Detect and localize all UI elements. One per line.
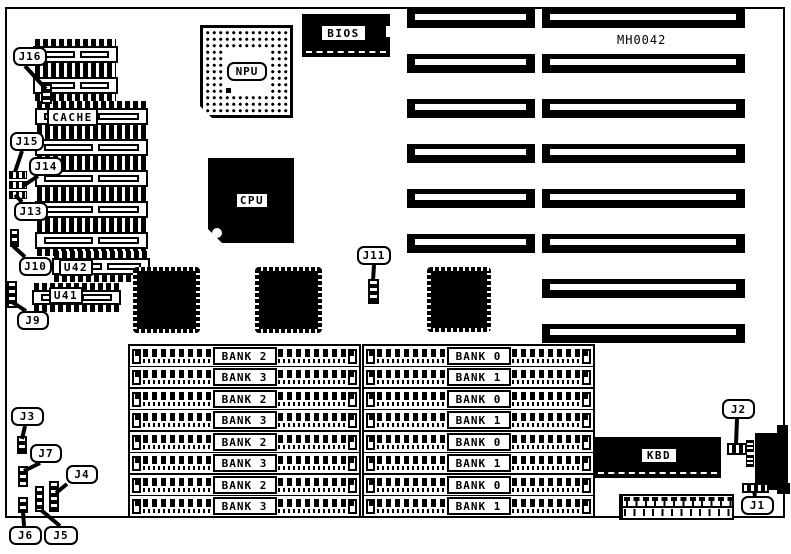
memory-bank-block-left: BANK 2 BANK 3 BANK 2 BANK 3 BANK 2 BANK …: [128, 344, 361, 518]
simm-clip-left: [132, 435, 141, 450]
dip-pins: [37, 101, 146, 108]
simm-pads: [512, 454, 581, 473]
power-sockets-row: [623, 506, 732, 518]
expansion-slot: [407, 9, 535, 28]
expansion-slot: [407, 234, 535, 253]
bank-label: BANK 0: [447, 433, 511, 451]
model-number: MH0042: [617, 33, 666, 47]
bank-label: BANK 3: [213, 368, 277, 386]
simm-socket: BANK 1: [364, 410, 593, 432]
expansion-slot: [407, 189, 535, 208]
simm-pads: [278, 368, 347, 387]
simm-pads: [377, 497, 446, 516]
u42-label: U42: [59, 259, 93, 276]
jumper-label-j13: J13: [14, 202, 48, 221]
simm-pads: [143, 390, 212, 409]
simm-clip-left: [132, 349, 141, 364]
simm-clip-left: [132, 478, 141, 493]
qfp-chip: [133, 267, 200, 333]
expansion-slot: [542, 189, 745, 208]
simm-pads: [278, 454, 347, 473]
jumper-label-j16: J16: [13, 47, 47, 66]
simm-pads: [377, 411, 446, 430]
jumper-label-j11: J11: [357, 246, 391, 265]
bank-label: BANK 0: [447, 347, 511, 365]
simm-clip-left: [132, 499, 141, 514]
qfp-chip: [255, 267, 322, 333]
simm-clip-left: [366, 370, 375, 385]
jumper-j10: [10, 229, 19, 247]
simm-pads: [377, 368, 446, 387]
keyboard-connector-pins: [746, 440, 754, 452]
bank-label: BANK 3: [213, 411, 277, 429]
bank-label: BANK 3: [213, 454, 277, 472]
dip-pins: [37, 125, 146, 132]
bank-label: BANK 1: [447, 368, 511, 386]
dip-pins: [37, 218, 146, 225]
simm-clip-right: [348, 499, 357, 514]
keyboard-connector: [755, 433, 788, 490]
cpu-label: CPU: [235, 192, 269, 209]
simm-clip-left: [132, 456, 141, 471]
expansion-slot: [542, 279, 745, 298]
dip-pins: [37, 194, 146, 201]
expansion-slot: [542, 9, 745, 28]
simm-clip-left: [132, 370, 141, 385]
simm-socket: BANK 2: [130, 346, 359, 367]
simm-socket: BANK 2: [130, 432, 359, 453]
simm-clip-left: [366, 392, 375, 407]
simm-pads: [512, 411, 581, 430]
jumper-label-j14: J14: [29, 157, 63, 176]
jumper-j6: [18, 497, 28, 513]
simm-pads: [278, 497, 347, 516]
jumper-label-j9: J9: [17, 311, 49, 330]
simm-clip-left: [132, 392, 141, 407]
cache-label: CACHE: [47, 108, 98, 126]
bank-label: BANK 2: [213, 433, 277, 451]
jumper-j15-j14-1: [9, 171, 27, 179]
simm-pads: [512, 368, 581, 387]
simm-pads: [512, 497, 581, 516]
simm-pads: [377, 433, 446, 452]
jumper-j11: [368, 279, 379, 304]
jumper-label-j3: J3: [11, 407, 44, 426]
simm-clip-right: [582, 499, 591, 514]
jumper-j15-j14-2: [9, 181, 27, 189]
jumper-label-j1: J1: [741, 496, 774, 515]
simm-pads: [278, 476, 347, 495]
simm-clip-left: [366, 499, 375, 514]
dip-pins: [35, 39, 116, 46]
u41-label: U41: [49, 287, 83, 304]
bank-label: BANK 1: [447, 497, 511, 515]
simm-pads: [512, 476, 581, 495]
jumper-label-j15: J15: [10, 132, 44, 151]
simm-socket: BANK 3: [130, 496, 359, 516]
expansion-slot: [407, 144, 535, 163]
expansion-slot: [542, 234, 745, 253]
power-pins-row: [623, 496, 732, 506]
simm-clip-right: [582, 349, 591, 364]
cache-dip-chip: [35, 194, 148, 225]
simm-pads: [278, 390, 347, 409]
power-connector: [619, 494, 734, 520]
jumper-label-j7: J7: [30, 444, 62, 463]
simm-socket: BANK 2: [130, 475, 359, 496]
simm-clip-right: [348, 456, 357, 471]
simm-socket: BANK 0: [364, 389, 593, 410]
keyboard-connector-tab: [777, 425, 788, 435]
simm-clip-left: [366, 349, 375, 364]
simm-pads: [143, 368, 212, 387]
jumper-j1: [742, 483, 769, 493]
dip-body: [35, 139, 148, 156]
simm-socket: BANK 3: [130, 453, 359, 475]
expansion-slot: [542, 54, 745, 73]
simm-pads: [512, 433, 581, 452]
expansion-slot: [542, 144, 745, 163]
bank-label: BANK 2: [213, 476, 277, 494]
simm-pads: [143, 347, 212, 366]
simm-socket: BANK 0: [364, 475, 593, 496]
expansion-slot: [542, 324, 745, 343]
jumper-j5: [35, 486, 44, 512]
bank-label: BANK 0: [447, 476, 511, 494]
jumper-j15-j14-3: [9, 191, 27, 199]
simm-clip-right: [348, 435, 357, 450]
kbd-label: KBD: [640, 447, 678, 464]
jumper-j16: [41, 84, 52, 104]
bank-label: BANK 0: [447, 390, 511, 408]
simm-socket: BANK 0: [364, 432, 593, 453]
simm-clip-right: [582, 456, 591, 471]
simm-clip-right: [348, 413, 357, 428]
simm-socket: BANK 1: [364, 367, 593, 389]
expansion-slot: [407, 54, 535, 73]
jumper-label-j2: J2: [722, 399, 755, 419]
jumper-j4: [49, 481, 59, 512]
simm-clip-right: [348, 349, 357, 364]
kbd-pin1-dash: [598, 472, 717, 474]
simm-pads: [143, 454, 212, 473]
simm-pads: [377, 454, 446, 473]
keyboard-connector-pins: [746, 455, 754, 467]
jumper-label-j6: J6: [9, 526, 42, 545]
bank-label: BANK 2: [213, 347, 277, 365]
simm-socket: BANK 1: [364, 453, 593, 475]
simm-pads: [278, 433, 347, 452]
bios-label: BIOS: [320, 24, 367, 42]
simm-pads: [512, 347, 581, 366]
bank-label: BANK 3: [213, 497, 277, 515]
dip-body: [35, 201, 148, 218]
simm-clip-right: [348, 370, 357, 385]
jumper-j7: [18, 466, 28, 487]
bios-notch: [386, 26, 390, 37]
dip-body: [35, 232, 148, 249]
jumper-j2: [727, 443, 747, 455]
simm-socket: BANK 3: [130, 410, 359, 432]
simm-clip-right: [348, 392, 357, 407]
simm-socket: BANK 0: [364, 346, 593, 367]
dip-pins: [35, 63, 116, 70]
keyboard-connector-tab: [777, 483, 790, 494]
simm-pads: [143, 433, 212, 452]
simm-pads: [143, 497, 212, 516]
dip-pins: [37, 225, 146, 232]
dip-pins: [34, 305, 119, 312]
npu-label: NPU: [227, 62, 267, 81]
simm-pads: [377, 347, 446, 366]
simm-clip-right: [348, 478, 357, 493]
jumper-label-j5: J5: [44, 526, 78, 545]
simm-clip-left: [366, 456, 375, 471]
simm-socket: BANK 3: [130, 367, 359, 389]
memory-bank-block-right: BANK 0 BANK 1 BANK 0 BANK 1 BANK 0 BANK …: [362, 344, 595, 518]
bank-label: BANK 2: [213, 390, 277, 408]
simm-socket: BANK 1: [364, 496, 593, 516]
simm-clip-right: [582, 478, 591, 493]
dip-pins: [35, 70, 116, 77]
simm-clip-left: [366, 435, 375, 450]
simm-pads: [143, 476, 212, 495]
simm-pads: [278, 347, 347, 366]
jumper-label-j10: J10: [19, 257, 52, 276]
bank-label: BANK 1: [447, 411, 511, 429]
simm-clip-right: [582, 435, 591, 450]
motherboard-diagram: MH0042 BANK 2 BANK 3 BANK 2 BANK 3 BANK …: [0, 0, 791, 554]
dip-pins: [37, 132, 146, 139]
simm-pads: [377, 390, 446, 409]
simm-socket: BANK 2: [130, 389, 359, 410]
simm-clip-left: [366, 413, 375, 428]
simm-clip-right: [582, 370, 591, 385]
jumper-j3: [17, 436, 27, 454]
simm-pads: [278, 411, 347, 430]
qfp-chip: [427, 267, 491, 332]
simm-pads: [512, 390, 581, 409]
jumper-label-j4: J4: [66, 465, 98, 484]
expansion-slot: [542, 99, 745, 118]
bank-label: BANK 1: [447, 454, 511, 472]
simm-clip-right: [582, 413, 591, 428]
dip-pins: [37, 187, 146, 194]
jumper-j9: [7, 281, 17, 308]
cpu-pin1-dot: [212, 228, 222, 238]
dip-pins: [54, 251, 148, 258]
simm-clip-left: [366, 478, 375, 493]
simm-clip-left: [132, 413, 141, 428]
expansion-slot: [407, 99, 535, 118]
simm-clip-right: [582, 392, 591, 407]
bios-pin1-dash: [306, 51, 386, 53]
simm-pads: [377, 476, 446, 495]
simm-pads: [143, 411, 212, 430]
